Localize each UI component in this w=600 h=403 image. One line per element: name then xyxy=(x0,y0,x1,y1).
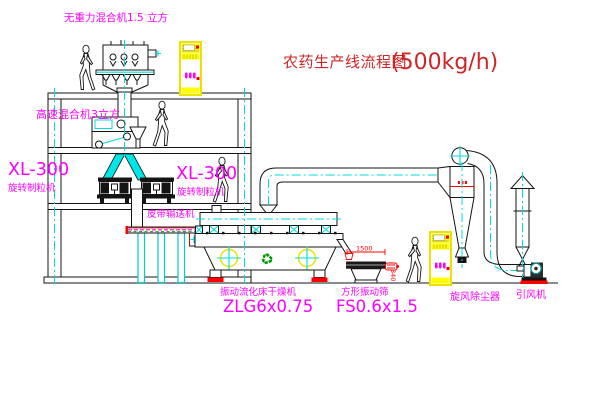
granulator-left xyxy=(97,178,133,204)
control-cabinet-top xyxy=(180,42,201,95)
control-cabinet-ground xyxy=(430,232,451,285)
worker-figure-roof xyxy=(80,45,95,90)
cad-flow-diagram: ♻ 1500 340 xyxy=(0,0,600,403)
granulator-right xyxy=(139,178,175,204)
diagram-title-capacity: (500kg/h) xyxy=(391,50,498,75)
high-speed-mixer xyxy=(92,117,146,148)
belt-conveyor xyxy=(126,226,200,283)
dimension-340: 340 xyxy=(389,269,397,281)
label-cyclone: 旋风除尘器 xyxy=(450,290,500,303)
discharge-duct xyxy=(132,189,143,228)
label-high-speed-mixer: 高速混合机3立方 xyxy=(36,107,120,121)
worker-figure-floor2 xyxy=(153,101,168,146)
gravity-free-mixer xyxy=(96,40,161,93)
floor2-slab xyxy=(48,148,251,154)
exhaust-duct xyxy=(260,168,446,213)
label-gravity-free-mixer: 无重力混合机1.5 立方 xyxy=(64,11,168,24)
cyclone-to-fan-duct xyxy=(467,151,525,277)
label-belt-conveyor: 皮带输送机 xyxy=(147,208,195,220)
label-granulator-right-name: 旋转制粒机 xyxy=(177,186,225,198)
worker-figure-ground xyxy=(406,237,421,282)
roof-slab xyxy=(48,93,251,99)
y-splitter xyxy=(102,154,147,180)
label-granulator-left-model: XL-300 xyxy=(8,160,69,180)
label-granulator-right-model: XL-300 xyxy=(176,164,237,184)
induced-draft-fan xyxy=(521,263,548,285)
label-granulator-left-name: 旋转制粒机 xyxy=(8,182,56,194)
label-sieve-model: FS0.6x1.5 xyxy=(336,297,418,316)
fluid-bed-dryer xyxy=(195,206,352,283)
drawing-svg: ♻ 1500 340 xyxy=(0,0,600,403)
diagram-title: 农药生产线流程图 xyxy=(283,53,407,71)
label-dryer-model: ZLG6x0.75 xyxy=(223,297,313,316)
dim-1500-text: 1500 xyxy=(356,245,373,253)
label-fan: 引风机 xyxy=(516,288,546,301)
